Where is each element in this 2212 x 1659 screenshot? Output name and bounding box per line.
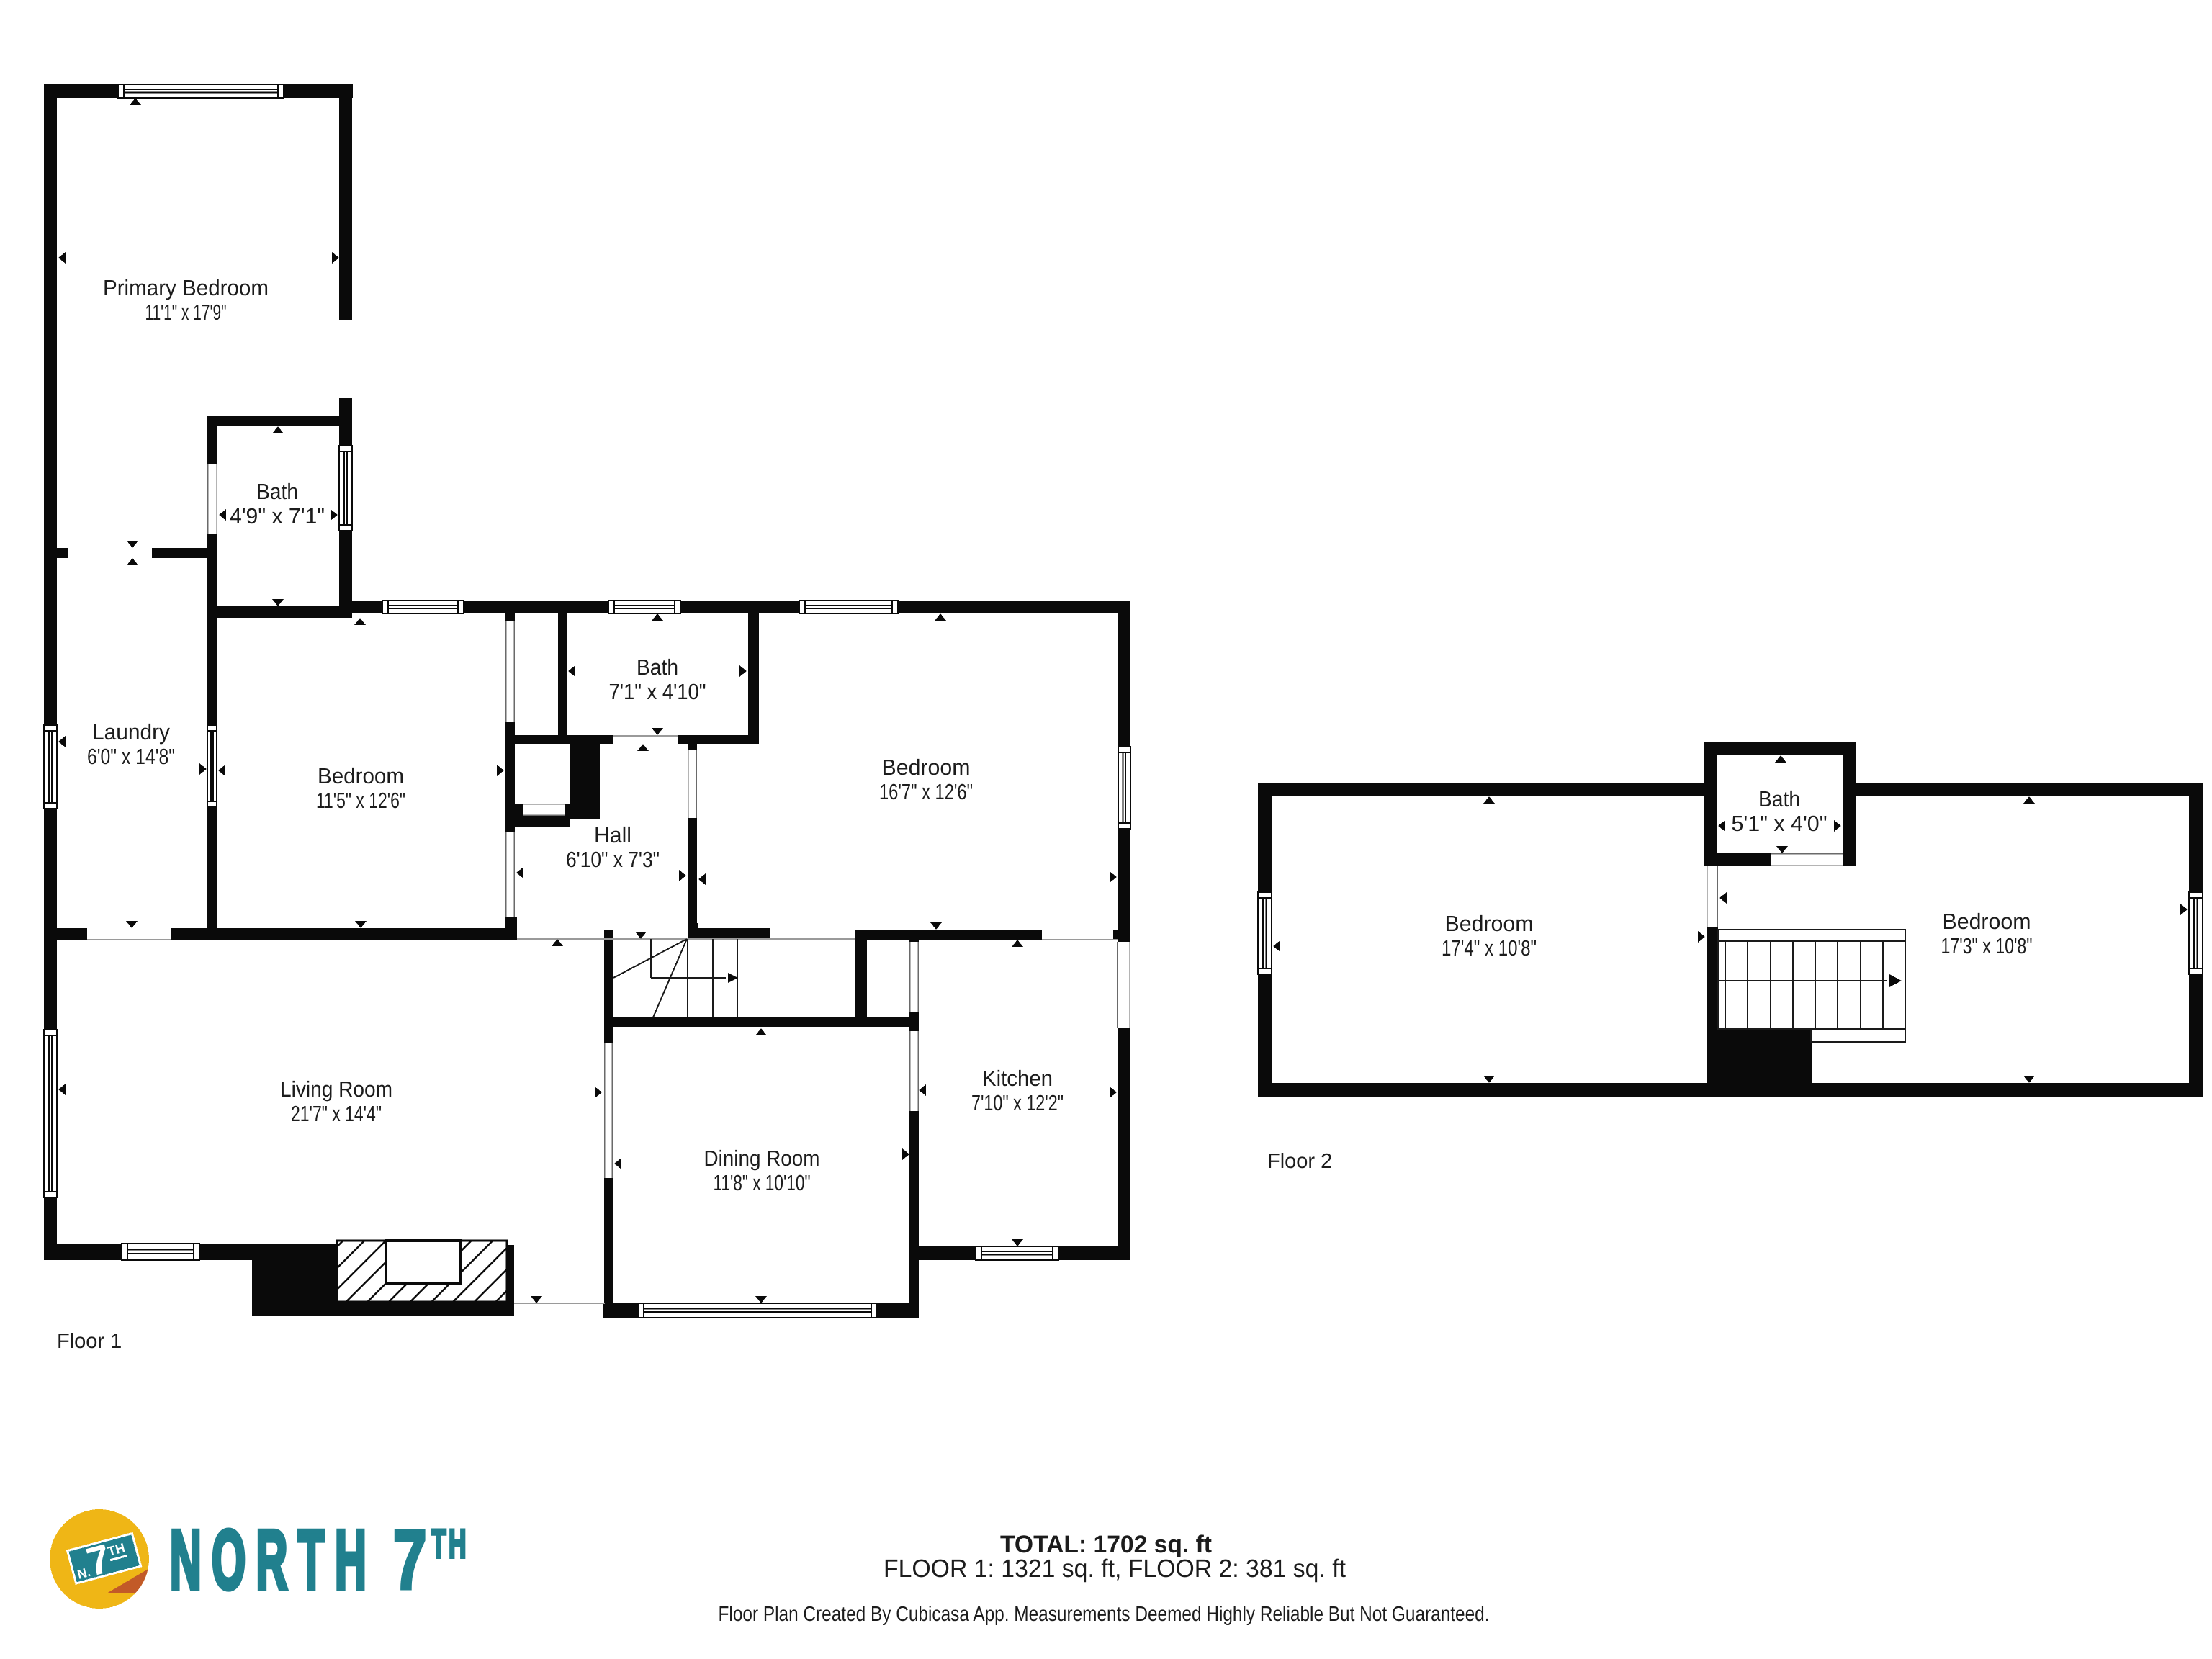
svg-text:11'1" x 17'9": 11'1" x 17'9" — [145, 300, 227, 325]
svg-text:TH: TH — [431, 1521, 469, 1566]
svg-text:Primary Bedroom: Primary Bedroom — [103, 276, 269, 300]
svg-text:17'3" x 10'8": 17'3" x 10'8" — [1941, 934, 2033, 958]
svg-text:Bath: Bath — [1758, 787, 1800, 811]
svg-text:7'1" x 4'10": 7'1" x 4'10" — [609, 680, 706, 704]
svg-text:Kitchen: Kitchen — [982, 1066, 1053, 1091]
svg-text:Floor Plan Created By Cubicasa: Floor Plan Created By Cubicasa App. Meas… — [719, 1603, 1490, 1626]
svg-text:16'7" x 12'6": 16'7" x 12'6" — [879, 780, 973, 804]
svg-text:Hall: Hall — [594, 823, 631, 848]
svg-text:Floor 2: Floor 2 — [1267, 1150, 1332, 1173]
svg-text:Living Room: Living Room — [280, 1077, 392, 1102]
svg-text:7'10" x 12'2": 7'10" x 12'2" — [971, 1091, 1064, 1115]
svg-text:5'1" x 4'0": 5'1" x 4'0" — [1732, 811, 1827, 836]
svg-text:Bath: Bath — [256, 480, 298, 504]
svg-text:Laundry: Laundry — [92, 720, 171, 745]
svg-text:Bath: Bath — [637, 655, 678, 680]
svg-text:4'9" x 7'1": 4'9" x 7'1" — [230, 504, 325, 529]
svg-text:Dining Room: Dining Room — [704, 1146, 820, 1171]
svg-text:11'8" x 10'10": 11'8" x 10'10" — [714, 1171, 811, 1195]
svg-text:Bedroom: Bedroom — [1445, 912, 1534, 936]
svg-text:17'4" x 10'8": 17'4" x 10'8" — [1442, 936, 1537, 961]
svg-text:6'10" x 7'3": 6'10" x 7'3" — [566, 848, 660, 872]
svg-text:21'7" x 14'4": 21'7" x 14'4" — [291, 1102, 382, 1126]
svg-text:Bedroom: Bedroom — [318, 764, 404, 788]
svg-text:Bedroom: Bedroom — [882, 755, 971, 780]
svg-text:Floor 1: Floor 1 — [57, 1330, 122, 1353]
svg-text:Bedroom: Bedroom — [1943, 909, 2031, 934]
svg-text:FLOOR 1: 1321 sq. ft, FLOOR 2:: FLOOR 1: 1321 sq. ft, FLOOR 2: 381 sq. f… — [884, 1555, 1346, 1583]
svg-text:7: 7 — [393, 1513, 426, 1606]
svg-text:11'5" x 12'6": 11'5" x 12'6" — [316, 788, 405, 813]
svg-text:NORTH: NORTH — [170, 1513, 377, 1606]
svg-text:6'0" x 14'8": 6'0" x 14'8" — [87, 745, 175, 769]
